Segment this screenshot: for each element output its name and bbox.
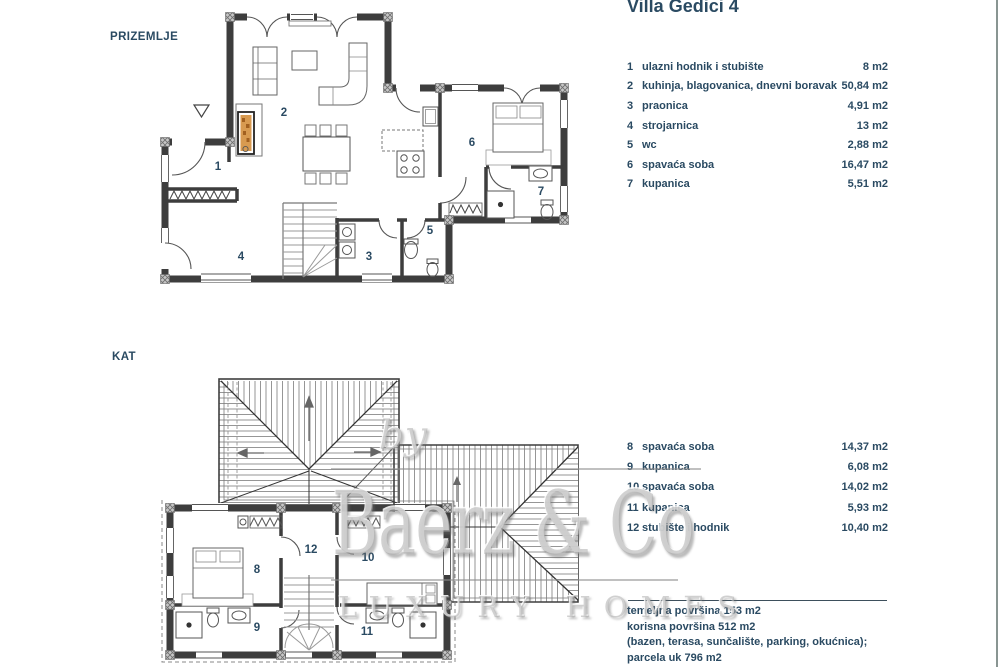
floor-label-ground: PRIZEMLJE: [110, 31, 178, 43]
room-number-9: 9: [254, 622, 260, 634]
room-number-2: 2: [281, 107, 287, 119]
legend-row: 4strojarnica13 m2: [627, 116, 888, 136]
bed-icon: [182, 548, 253, 606]
area-summary: temeljna površina 153 m2 korisna površin…: [627, 604, 907, 666]
legend-row: 8spavaća soba14,37 m2: [627, 437, 888, 457]
room-number-6: 6: [469, 137, 475, 149]
sink-icon: [228, 608, 250, 623]
room-number-8: 8: [254, 564, 260, 576]
legend-row: 9kupanica6,08 m2: [627, 457, 888, 477]
legend-row: 11kupanica5,93 m2: [627, 498, 888, 518]
tv-cabinet-icon: [289, 21, 331, 26]
room-number-5: 5: [427, 225, 433, 237]
room-number-11: 11: [361, 626, 373, 638]
fireplace-icon: [236, 104, 262, 156]
legend-row: 6spavaća soba16,47 m2: [627, 155, 888, 175]
legend-row: 7kupanica5,51 m2: [627, 175, 888, 195]
legend-row: 10spavaća soba14,02 m2: [627, 477, 888, 497]
room-number-1: 1: [215, 161, 221, 173]
legend-row: 2kuhinja, blagovanica, dnevni boravak50,…: [627, 77, 888, 97]
bed-icon: [367, 583, 437, 605]
toilet-icon: [207, 608, 219, 613]
summary-line: parcela uk 796 m2: [627, 651, 907, 667]
stove-icon: [397, 151, 424, 177]
coffee-table-icon: [292, 51, 317, 70]
legend-upper-floor: 8spavaća soba14,37 m2 9kupanica6,08 m2 1…: [627, 437, 888, 538]
room-number-12: 12: [305, 544, 318, 556]
sink-icon: [529, 166, 552, 181]
sofa-icon: [253, 47, 277, 95]
room-number-7: 7: [538, 186, 544, 198]
legend-ground-floor: 1ulazni hodnik i stubište8 m2 2kuhinja, …: [627, 57, 888, 194]
sink-icon: [366, 608, 388, 623]
room-number-4: 4: [238, 251, 244, 263]
legend-row: 3praonica4,91 m2: [627, 96, 888, 116]
summary-line: temeljna površina 153 m2: [627, 604, 907, 620]
summary-line: (bazen, terasa, sunčalište, parking, oku…: [627, 635, 907, 651]
legend-row: 1ulazni hodnik i stubište8 m2: [627, 57, 888, 77]
room-number-10: 10: [362, 552, 375, 564]
page-title: Villa Gedici 4: [627, 0, 739, 17]
legend-row: 12stubište i hodnik10,40 m2: [627, 518, 888, 538]
ground-floor-plan: [160, 12, 569, 284]
bed-icon: [486, 103, 551, 165]
legend-row: 5wc2,88 m2: [627, 135, 888, 155]
dining-table-icon: [303, 125, 350, 184]
toilet-icon: [392, 608, 404, 613]
roof-left: [219, 379, 399, 505]
upper-floor-plan: [162, 500, 455, 662]
room-number-3: 3: [366, 251, 372, 263]
summary-line: korisna površina 512 m2: [627, 620, 907, 636]
entrance-marker-icon: [194, 105, 209, 117]
floor-plan-page: Villa Gedici 4 PRIZEMLJE KAT 1 2 3 4 5 6…: [0, 0, 1000, 667]
floor-label-upper: KAT: [112, 351, 136, 363]
page-right-border: [996, 0, 998, 667]
summary-separator: [628, 600, 887, 601]
